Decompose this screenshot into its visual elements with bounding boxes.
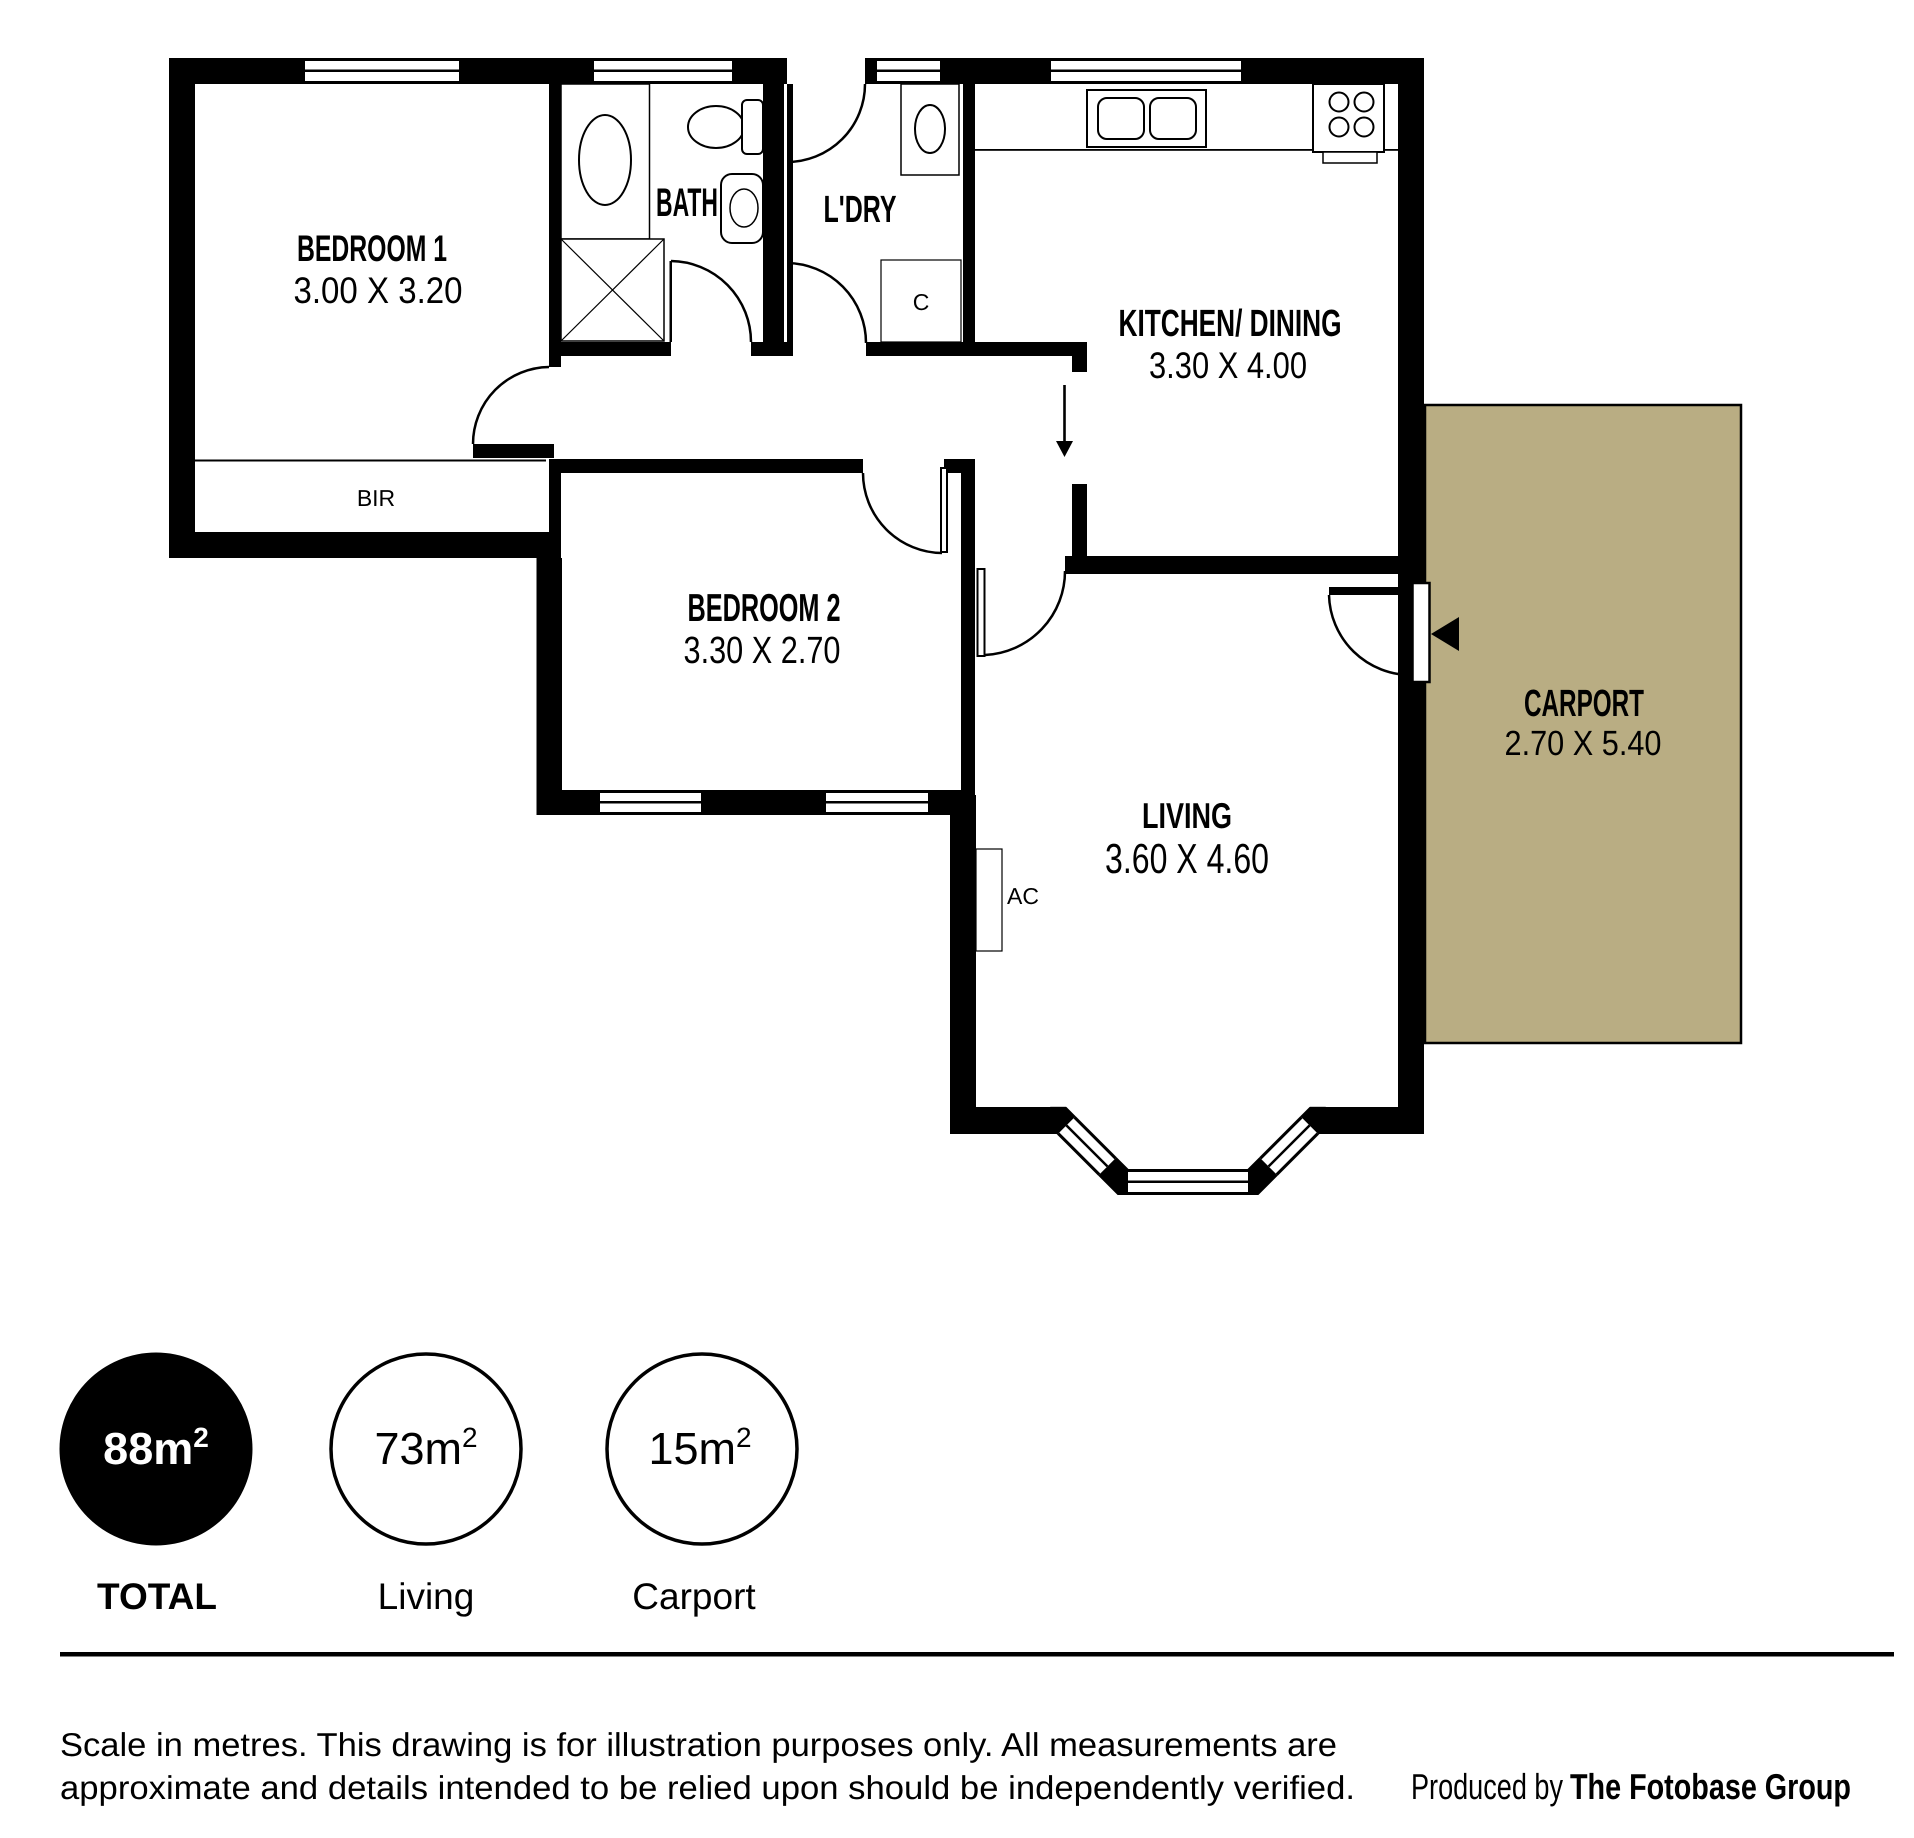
svg-text:BIR: BIR [357,485,395,511]
svg-text:Scale in metres. This drawing: Scale in metres. This drawing is for ill… [60,1726,1337,1763]
svg-text:3.30 X 2.70: 3.30 X 2.70 [684,630,841,672]
svg-text:C: C [913,289,930,315]
svg-text:AC: AC [1007,883,1039,909]
svg-text:CARPORT: CARPORT [1524,683,1644,725]
svg-text:88m2: 88m2 [103,1422,209,1474]
svg-text:3.00 X 3.20: 3.00 X 3.20 [294,270,463,311]
svg-text:BEDROOM 2: BEDROOM 2 [688,587,841,630]
svg-text:BEDROOM 1: BEDROOM 1 [297,228,447,269]
svg-text:L'DRY: L'DRY [824,189,897,231]
svg-text:3.60 X 4.60: 3.60 X 4.60 [1105,835,1269,882]
svg-text:BATH: BATH [656,181,718,225]
svg-text:Living: Living [378,1576,475,1617]
svg-text:TOTAL: TOTAL [97,1576,217,1617]
svg-text:LIVING: LIVING [1142,795,1232,836]
svg-text:Produced by: Produced by [1411,1766,1563,1807]
svg-text:KITCHEN/ DINING: KITCHEN/ DINING [1119,303,1342,345]
svg-text:The Fotobase Group: The Fotobase Group [1570,1766,1851,1807]
svg-text:2.70 X 5.40: 2.70 X 5.40 [1505,724,1662,763]
svg-text:approximate and details intend: approximate and details intended to be r… [60,1769,1355,1806]
svg-text:Carport: Carport [632,1576,756,1617]
svg-text:3.30 X 4.00: 3.30 X 4.00 [1149,345,1307,386]
